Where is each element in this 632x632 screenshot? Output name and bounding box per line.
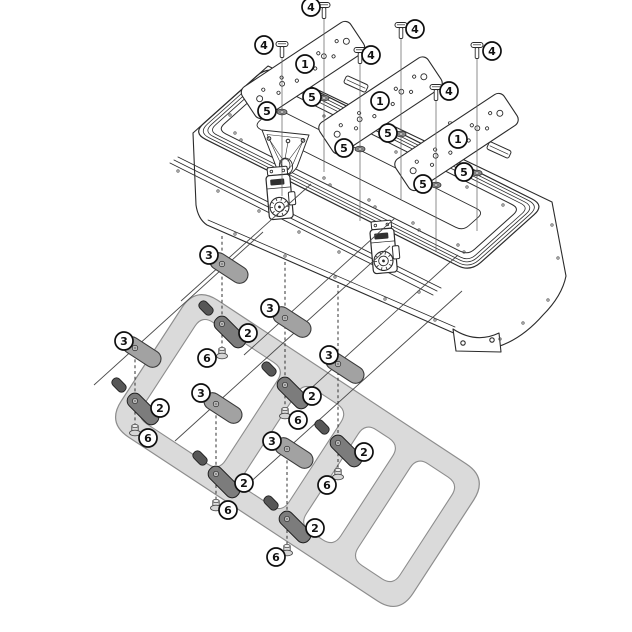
brand-label <box>270 178 284 185</box>
washer-hole <box>434 184 438 186</box>
callout-number: 6 <box>203 352 211 365</box>
callout-number: 1 <box>376 95 384 108</box>
callout-3: 3 <box>320 346 338 364</box>
screw-head-dot-icon <box>335 361 340 366</box>
callout-4: 4 <box>362 46 380 64</box>
callout-2: 2 <box>306 519 324 537</box>
callout-6: 6 <box>267 548 285 566</box>
callout-number: 2 <box>240 477 248 490</box>
callout-number: 1 <box>454 133 462 146</box>
screw-head-dot-icon <box>284 516 289 521</box>
callout-number: 1 <box>301 58 309 71</box>
nut-top <box>335 468 341 471</box>
callout-5: 5 <box>258 102 276 120</box>
callout-5: 5 <box>414 175 432 193</box>
screw-shaft <box>322 8 326 19</box>
callout-5: 5 <box>379 124 397 142</box>
nut-top <box>219 347 225 350</box>
washer <box>277 109 287 115</box>
latch-screw-icon <box>374 224 377 227</box>
callout-3: 3 <box>115 332 133 350</box>
screw-head-dot-icon <box>282 315 287 320</box>
callout-3: 3 <box>263 432 281 450</box>
callout-2: 2 <box>355 443 373 461</box>
callout-2: 2 <box>151 399 169 417</box>
callout-number: 3 <box>325 349 333 362</box>
callout-4: 4 <box>440 82 458 100</box>
brand-label <box>374 232 388 239</box>
screw-shaft <box>434 90 438 101</box>
callout-number: 6 <box>224 504 232 517</box>
callout-5: 5 <box>335 139 353 157</box>
nut-flange <box>217 353 228 359</box>
callout-6: 6 <box>289 411 307 429</box>
rivet-dot-icon <box>177 170 179 172</box>
washer-hole <box>358 148 362 150</box>
callout-number: 6 <box>144 432 152 445</box>
nut-top <box>282 407 288 410</box>
screw-shaft <box>475 48 479 59</box>
screw-head-dot-icon <box>213 401 218 406</box>
washer-hole <box>475 172 479 174</box>
washer-hole <box>322 97 326 99</box>
callout-number: 6 <box>323 479 331 492</box>
callout-number: 3 <box>268 435 276 448</box>
callout-6: 6 <box>219 501 237 519</box>
callout-number: 2 <box>308 390 316 403</box>
washer <box>355 146 365 152</box>
callout-2: 2 <box>239 324 257 342</box>
callout-4: 4 <box>302 0 320 16</box>
callout-number: 4 <box>367 49 375 62</box>
screw-head-dot-icon <box>219 321 224 326</box>
exploded-assembly-diagram: 444444111555555333333222222666666 <box>0 0 632 632</box>
screw-head-dot-icon <box>282 382 287 387</box>
callout-number: 5 <box>263 105 271 118</box>
callout-number: 2 <box>244 327 252 340</box>
callout-4: 4 <box>483 42 501 60</box>
diagram-page: 444444111555555333333222222666666 <box>0 0 632 632</box>
callout-2: 2 <box>235 474 253 492</box>
clamp-end-nub <box>110 376 128 394</box>
callout-3: 3 <box>200 246 218 264</box>
callout-number: 2 <box>360 446 368 459</box>
latch-screw-icon <box>270 170 273 173</box>
callout-number: 6 <box>272 551 280 564</box>
screw-shaft <box>280 47 284 58</box>
nut-top <box>213 499 219 502</box>
callout-1: 1 <box>449 130 467 148</box>
callout-6: 6 <box>318 476 336 494</box>
screw-head-dot-icon <box>284 446 289 451</box>
screw-head-dot-icon <box>219 261 224 266</box>
callout-6: 6 <box>198 349 216 367</box>
callout-5: 5 <box>455 163 473 181</box>
callout-number: 5 <box>308 91 316 104</box>
washer-hole <box>399 133 403 135</box>
callout-2: 2 <box>303 387 321 405</box>
callout-number: 3 <box>205 249 213 262</box>
callout-number: 2 <box>156 402 164 415</box>
callout-1: 1 <box>296 55 314 73</box>
callout-6: 6 <box>139 429 157 447</box>
callout-number: 5 <box>419 178 427 191</box>
callout-number: 3 <box>197 387 205 400</box>
washer-hole <box>280 111 284 113</box>
callout-number: 5 <box>384 127 392 140</box>
callout-number: 4 <box>488 45 496 58</box>
callout-number: 3 <box>266 302 274 315</box>
callout-1: 1 <box>371 92 389 110</box>
screw-shaft <box>399 28 403 39</box>
screw-head-dot-icon <box>335 440 340 445</box>
callout-4: 4 <box>255 36 273 54</box>
callout-number: 4 <box>445 85 453 98</box>
callout-number: 6 <box>294 414 302 427</box>
callout-3: 3 <box>261 299 279 317</box>
callout-number: 4 <box>411 23 419 36</box>
screw-head-dot-icon <box>132 398 137 403</box>
screw-head-dot-icon <box>213 471 218 476</box>
callout-number: 3 <box>120 335 128 348</box>
screw-head-dot-icon <box>132 345 137 350</box>
latch-hook <box>392 246 400 260</box>
callout-5: 5 <box>303 88 321 106</box>
callout-number: 4 <box>307 1 315 14</box>
callout-3: 3 <box>192 384 210 402</box>
nut-top <box>132 424 138 427</box>
nut-top <box>284 544 290 547</box>
callout-4: 4 <box>406 20 424 38</box>
callout-number: 5 <box>460 166 468 179</box>
callout-number: 5 <box>340 142 348 155</box>
callout-number: 2 <box>311 522 319 535</box>
callout-number: 4 <box>260 39 268 52</box>
